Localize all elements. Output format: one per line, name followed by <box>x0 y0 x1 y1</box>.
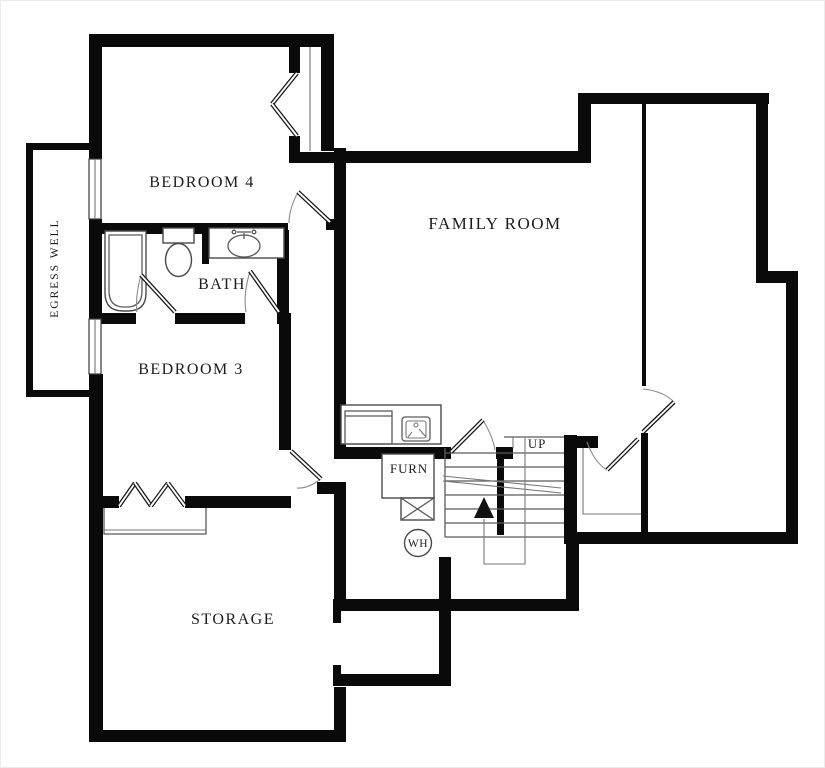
floor-plan-canvas: BEDROOM 4 BEDROOM 3 FAMILY ROOM BATH STO… <box>1 1 825 768</box>
furnace-label: FURN <box>390 461 428 476</box>
stairs-up-label: UP <box>528 436 546 451</box>
water-heater-label: WH <box>408 538 428 550</box>
laundry-counter <box>341 405 441 444</box>
bath-label: BATH <box>198 276 246 293</box>
duct-box <box>401 498 434 520</box>
door-bath-right <box>245 271 279 312</box>
stair-landing <box>583 448 641 514</box>
closet-bifold-bedroom3 <box>104 483 206 534</box>
window-bedroom3 <box>89 319 101 374</box>
family-room-label: FAMILY ROOM <box>428 214 561 233</box>
vanity-sink <box>209 228 284 258</box>
door-family-room-hall <box>451 420 495 452</box>
bedroom3-label: BEDROOM 3 <box>138 361 244 378</box>
window-bedroom4 <box>89 159 101 219</box>
door-bedroom3 <box>291 451 321 488</box>
bedroom4-label: BEDROOM 4 <box>149 174 255 191</box>
stair-up-arrow <box>474 497 494 518</box>
toilet <box>163 228 194 277</box>
door-family-room-rear <box>643 389 674 432</box>
bathtub <box>105 231 146 311</box>
storage-label: STORAGE <box>191 611 275 628</box>
walls <box>89 34 798 742</box>
floor-plan: BEDROOM 4 BEDROOM 3 FAMILY ROOM BATH STO… <box>0 0 825 768</box>
egress-well-label: EGRESS WELL <box>49 218 61 317</box>
door-bedroom4 <box>289 192 330 223</box>
